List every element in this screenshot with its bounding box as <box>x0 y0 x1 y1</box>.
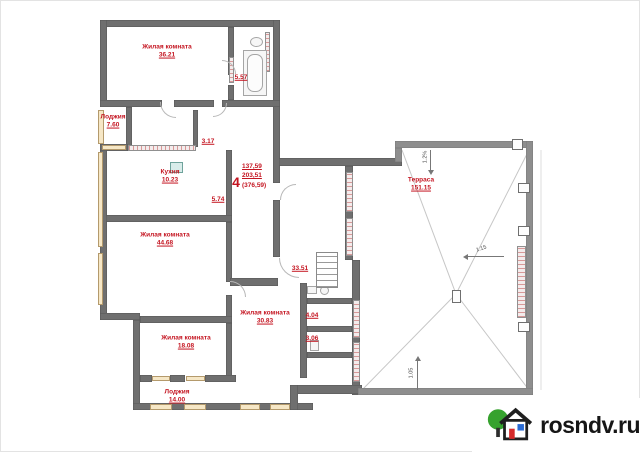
wall-segment <box>226 323 232 378</box>
wall-segment <box>126 107 132 147</box>
slope-arrow-top <box>430 150 431 170</box>
wall-segment <box>307 352 352 358</box>
room-label-loggia-2: Лоджия 14.00 <box>165 389 190 406</box>
window-marker <box>102 145 126 150</box>
room-name: Лоджия <box>165 389 190 396</box>
wall-segment <box>290 385 362 394</box>
terrace-wall-segment <box>395 148 402 162</box>
window-hatch <box>353 300 360 338</box>
wall-segment <box>100 20 280 27</box>
room-area: 18.08 <box>161 343 210 351</box>
window-hatch <box>346 172 353 212</box>
wall-segment <box>100 313 140 320</box>
room-area: 36.21 <box>142 52 191 60</box>
column-marker <box>518 183 530 193</box>
watermark[interactable]: rosndv.ru <box>472 398 640 452</box>
wall-segment <box>226 222 232 282</box>
slope-arrowhead-mid <box>463 254 468 260</box>
wall-segment <box>100 100 162 107</box>
unit-area-full: (376,59) <box>242 181 266 190</box>
wall-segment <box>193 110 198 147</box>
room-label-bathroom: 5.57 <box>235 74 248 82</box>
slope-label-bottom: 1.05 <box>408 368 414 379</box>
slope-label-top: 1.2% <box>422 151 428 164</box>
wall-segment <box>300 283 307 378</box>
room-label-living-3: Жилая комната 30.83 <box>240 310 289 327</box>
wall-segment <box>140 316 232 323</box>
slope-arrowhead-top <box>428 170 434 175</box>
window-marker <box>240 404 260 410</box>
wall-segment <box>307 326 352 332</box>
floor-plan: Жилая комната 36.21 5.57 Лоджия 7.60 3.1… <box>0 0 640 452</box>
bathtub-basin <box>247 54 263 92</box>
slope-arrow-bottom <box>417 360 418 390</box>
room-name: Жилая комната <box>240 310 289 317</box>
room-label-living-1: Жилая комната 36.21 <box>142 44 191 61</box>
column-marker <box>518 322 530 332</box>
wall-segment <box>226 150 232 218</box>
room-label-loggia-1: Лоджия 7.60 <box>101 114 126 131</box>
room-name: Кухня <box>161 169 180 176</box>
room-area: 4.04 <box>306 312 319 320</box>
room-name: Жилая комната <box>161 335 210 342</box>
wall-segment <box>290 385 298 410</box>
room-area: 5.74 <box>212 196 225 204</box>
room-area: 3.17 <box>202 138 215 146</box>
wall-segment <box>133 320 140 410</box>
room-label-hall-small: 5.74 <box>212 196 225 204</box>
window-marker <box>98 253 103 305</box>
unit-number: 4 <box>232 174 240 190</box>
watermark-text[interactable]: rosndv.ru <box>540 412 640 439</box>
room-label-closet: 3.17 <box>202 138 215 146</box>
column-marker <box>452 290 461 303</box>
room-area: 44.68 <box>140 240 189 248</box>
room-area: 10.23 <box>161 177 180 185</box>
terrace-wall-segment <box>526 141 533 395</box>
wall-segment <box>228 85 234 100</box>
window-marker <box>98 152 103 247</box>
room-area: 151.15 <box>408 185 434 193</box>
terrace-wall-segment <box>358 388 533 395</box>
wall-segment <box>100 20 107 107</box>
room-name: Лоджия <box>101 114 126 121</box>
wall-segment <box>106 215 232 222</box>
room-name: Терраса <box>408 177 434 184</box>
wall-segment <box>205 375 236 382</box>
window-hatch <box>128 145 196 151</box>
column-marker <box>512 139 523 150</box>
room-label-terrace: Терраса 151.15 <box>408 177 434 194</box>
room-label-living-4: Жилая комната 18.08 <box>161 335 210 352</box>
wall-segment <box>273 200 280 257</box>
sink-icon <box>250 37 263 47</box>
column-marker <box>518 226 530 236</box>
room-label-corridor: 33.51 <box>292 265 308 273</box>
window-marker <box>152 376 170 381</box>
room-label-wc-2: 3.06 <box>306 335 319 343</box>
room-name: Жилая комната <box>140 232 189 239</box>
room-label-kitchen: Кухня 10.23 <box>161 169 180 186</box>
slope-arrow-mid <box>468 256 504 257</box>
wall-segment <box>140 375 152 382</box>
window-hatch <box>346 218 353 256</box>
slope-arrowhead-bottom <box>415 356 421 361</box>
room-area: 3.06 <box>306 335 319 343</box>
unit-areas: 137,59 203,51 (376,59) <box>242 162 266 190</box>
unit-area-living: 137,59 <box>242 162 266 171</box>
window-hatch <box>353 342 360 382</box>
window-hatch <box>517 246 526 318</box>
room-area: 33.51 <box>292 265 308 273</box>
room-area: 5.57 <box>235 74 248 82</box>
stairs-icon <box>316 252 338 288</box>
room-area: 14.00 <box>165 397 190 405</box>
room-area: 7.60 <box>101 122 126 130</box>
room-area: 30.83 <box>240 318 289 326</box>
room-label-wc-1: 4.04 <box>306 312 319 320</box>
wall-segment <box>174 100 214 107</box>
wall-segment <box>222 100 280 107</box>
wall-segment <box>279 158 402 166</box>
room-label-living-2: Жилая комната 44.68 <box>140 232 189 249</box>
unit-area-total: 203,51 <box>242 171 266 180</box>
room-name: Жилая комната <box>142 44 191 51</box>
wall-segment <box>307 298 352 304</box>
window-marker <box>270 404 290 410</box>
wall-segment <box>170 375 185 382</box>
window-marker <box>186 376 205 381</box>
house-with-tree-icon <box>486 404 534 446</box>
